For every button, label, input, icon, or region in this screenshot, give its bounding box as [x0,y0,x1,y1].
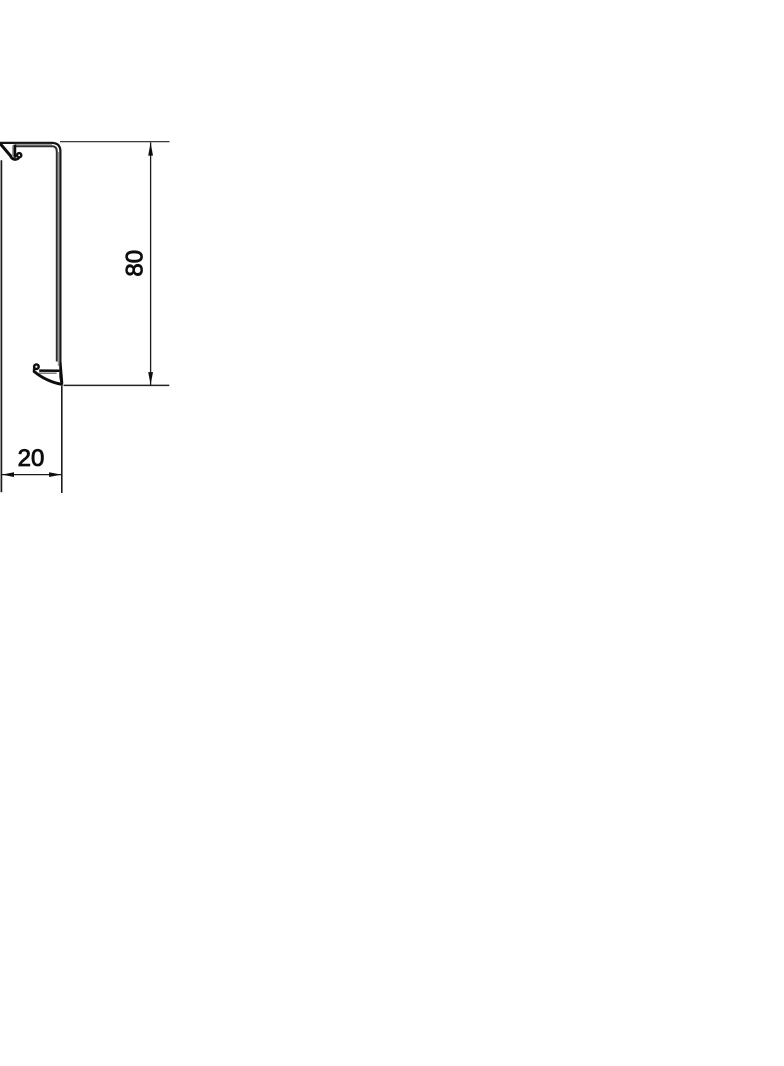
svg-text:20: 20 [18,445,45,472]
svg-text:80: 80 [121,250,148,277]
